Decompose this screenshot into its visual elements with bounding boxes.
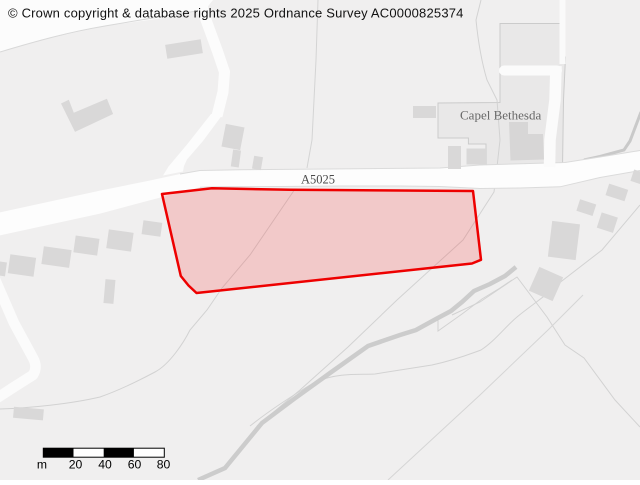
svg-text:20: 20 — [69, 458, 83, 472]
svg-text:Capel Bethesda: Capel Bethesda — [460, 108, 541, 123]
svg-text:© Crown copyright & database r: © Crown copyright & database rights 2025… — [8, 6, 464, 21]
svg-text:m: m — [37, 458, 47, 472]
svg-text:60: 60 — [128, 458, 142, 472]
svg-text:40: 40 — [98, 458, 112, 472]
svg-text:80: 80 — [157, 458, 171, 472]
svg-text:A5025: A5025 — [301, 173, 335, 187]
